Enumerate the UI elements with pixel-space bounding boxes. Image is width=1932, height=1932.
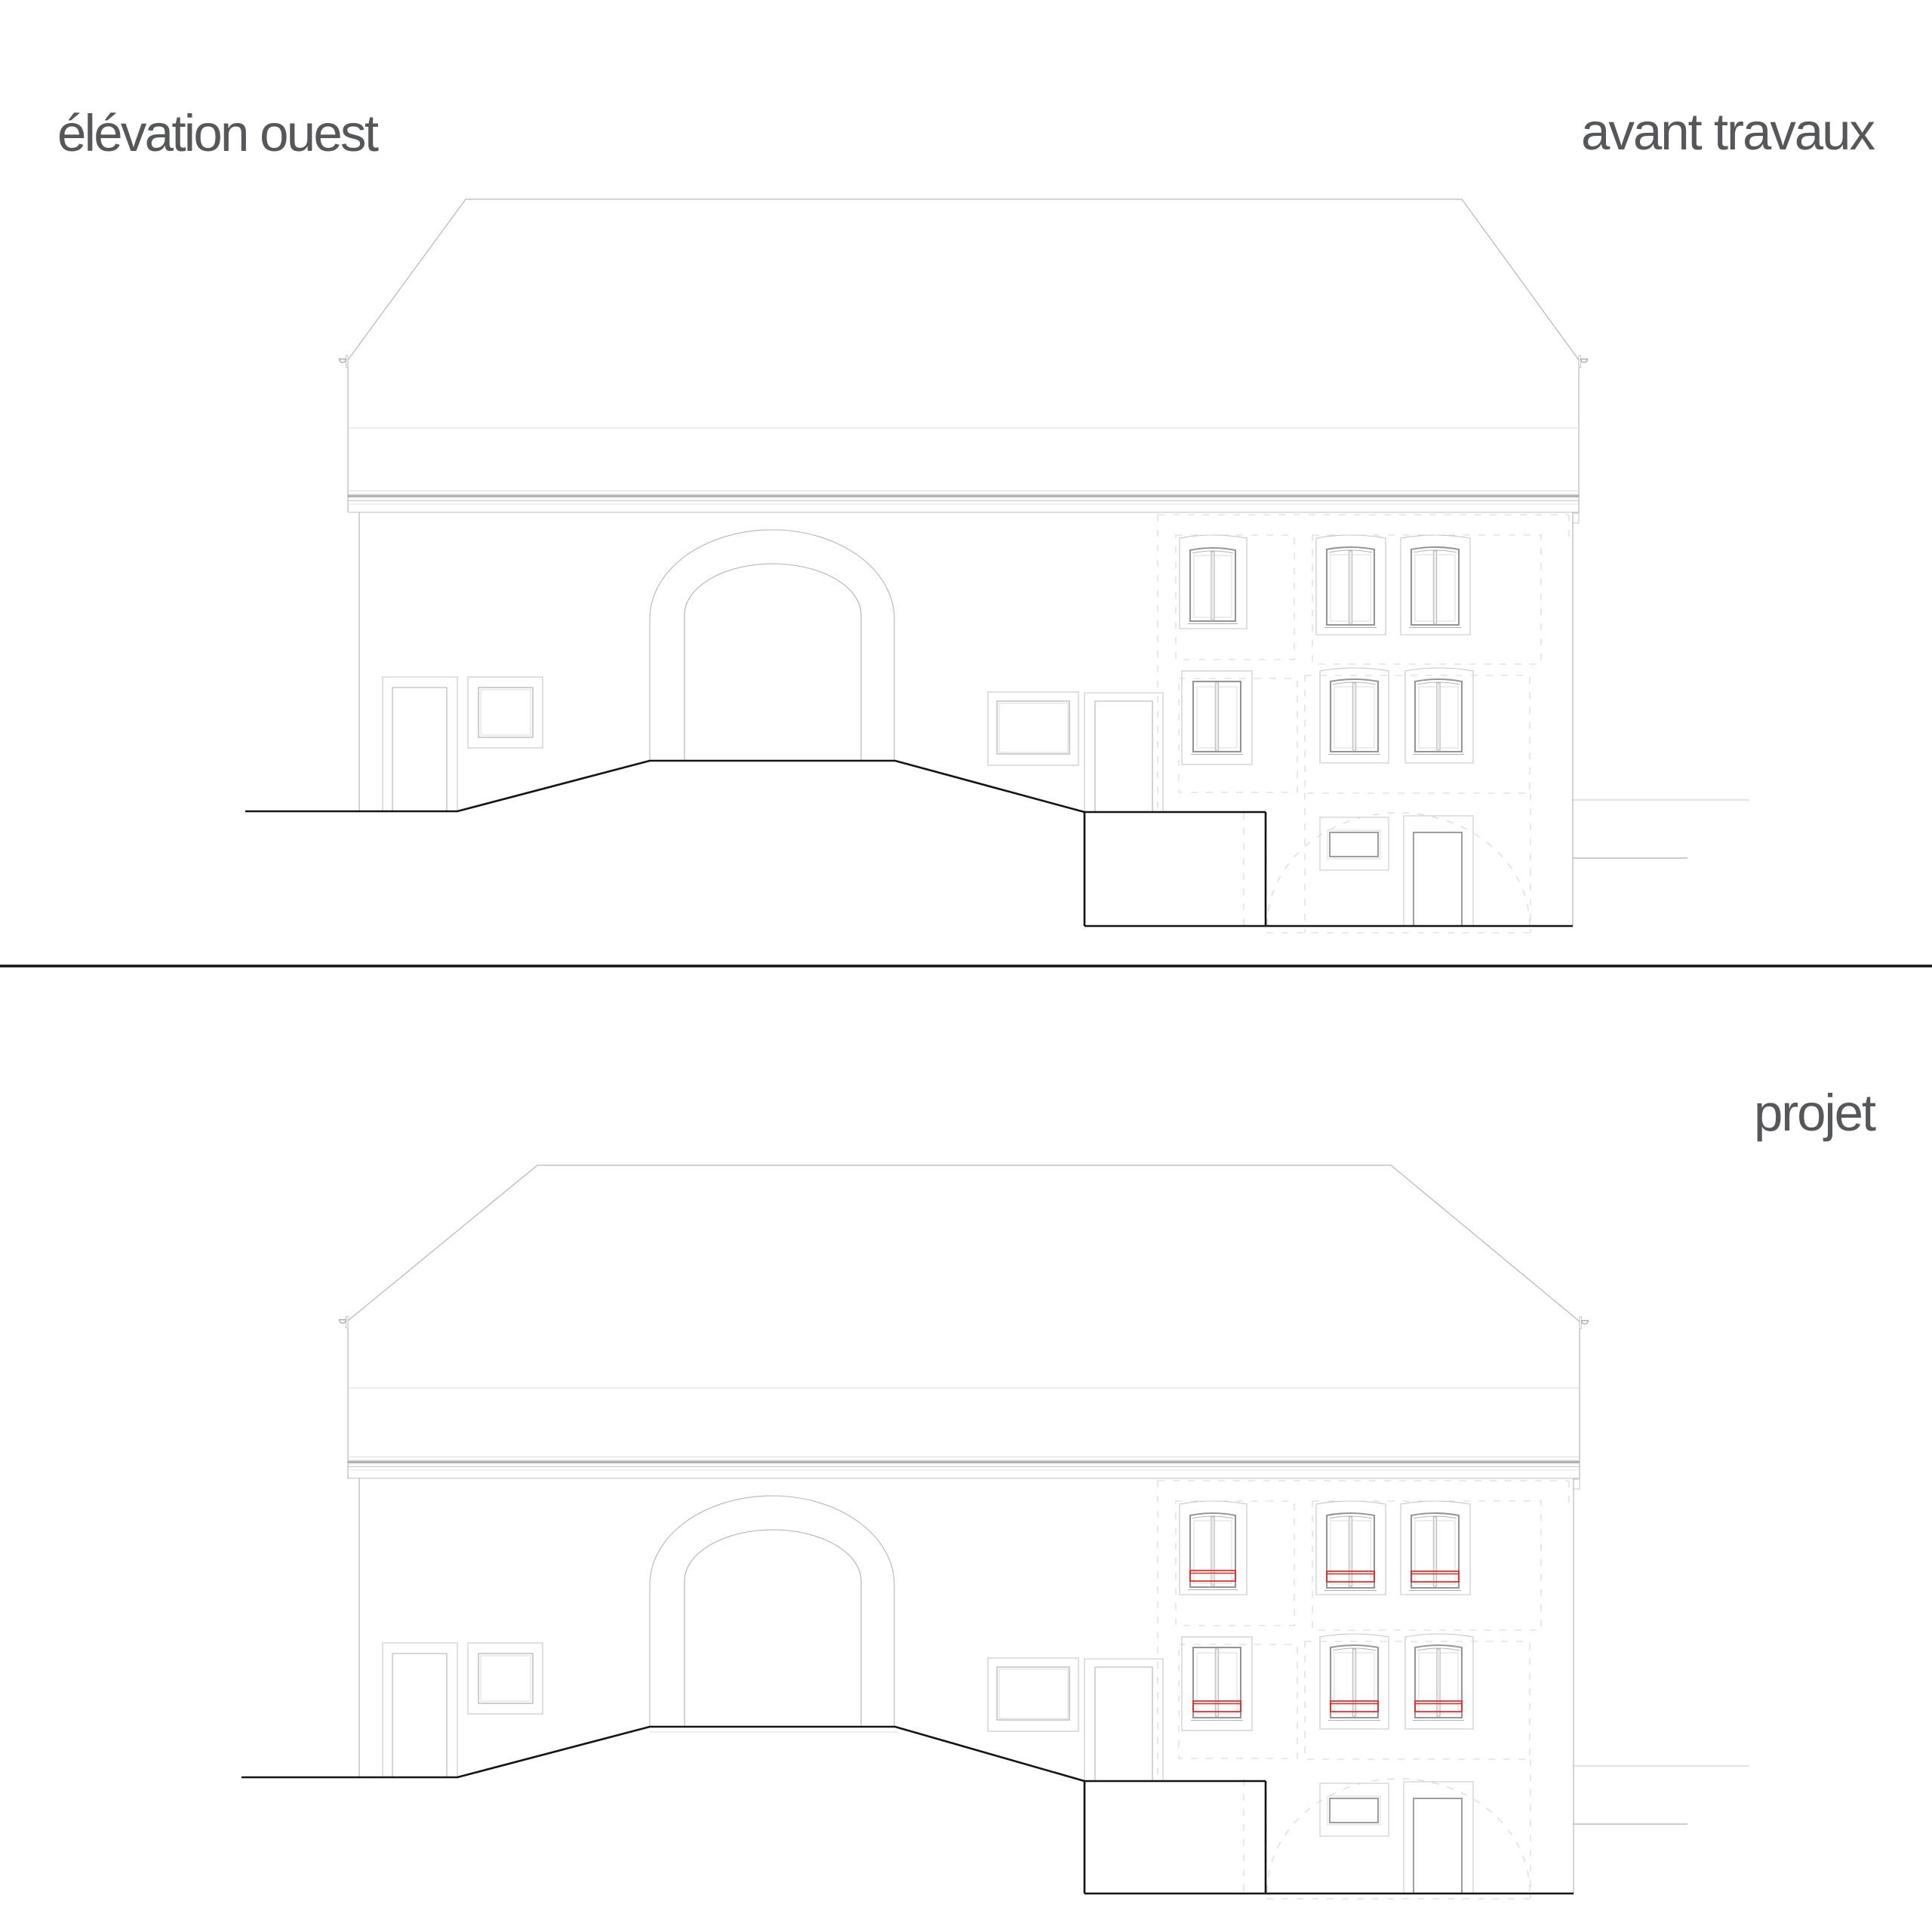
svg-text:projet: projet xyxy=(1754,1084,1876,1142)
svg-text:élévation ouest: élévation ouest xyxy=(57,104,379,162)
svg-text:avant travaux: avant travaux xyxy=(1581,103,1875,161)
